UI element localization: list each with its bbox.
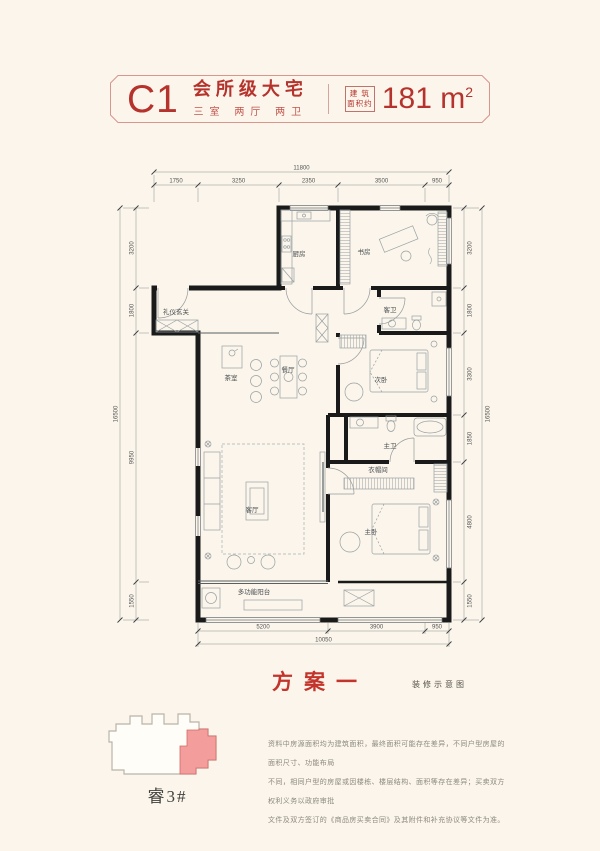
walls [154,208,449,620]
dim-left-seg: 3200 [130,241,136,255]
page: C1 会所级大宅 三室 两厅 两卫 建 筑 面积约 181 m2 [0,0,600,851]
area-label-line1: 建 筑 [346,89,374,99]
lamp-icon [205,441,211,447]
plaque-content: C1 会所级大宅 三室 两厅 两卫 建 筑 面积约 181 m2 [110,75,490,123]
room-label-master-bath: 主卫 [384,441,398,450]
title-block: 会所级大宅 三室 两厅 两卫 [193,80,308,118]
lamp-icon [433,555,439,561]
partitions [198,333,328,584]
disclaimer-line: 资料中房源面积均为建筑面积，最终面积可能存在差异，不同户型房屋的面积尺寸、功能布… [268,735,510,773]
bedroom2-furniture [340,335,437,402]
room-label-bedroom2: 次卧 [375,375,389,384]
disclaimer-line: 文件及双方签订的《商品房买卖合同》及其附件和补充协议等文件为准。 [268,811,510,830]
corridor-cabinet [316,314,328,342]
dim-right-seg: 3200 [468,241,474,255]
dim-right-seg: 4800 [468,515,474,529]
unit-code: C1 [127,80,179,119]
dim-top-seg: 1750 [169,179,183,185]
header-plaque: C1 会所级大宅 三室 两厅 两卫 建 筑 面积约 181 m2 [110,75,490,123]
dim-bottom-total: 10050 [315,638,332,644]
lamp-icon [205,553,211,559]
dim-right-total: 16500 [486,405,492,422]
dim-right-seg: 1800 [468,303,474,317]
floor-plan-drawing: 厨房 书房 客卫 礼仪玄关 茶室 餐厅 次卧 客厅 主卫 衣帽间 主卧 多功能阳… [94,152,506,667]
disclaimer-line: 不同，相同户型的房屋或因楼栋、楼层结构、面积等存在差异；买卖双方权利义务以政府审… [268,773,510,811]
room-label-living: 客厅 [246,505,260,514]
plan-subtitle: 三室 两厅 两卫 [193,103,308,118]
room-label-kitchen: 厨房 [293,249,306,258]
dim-bottom-seg: 950 [432,625,443,631]
kitchen-furniture [281,210,330,284]
room-label-guest-bath: 客卫 [384,305,398,314]
dimension-lines: 11800 1750 3250 2350 3500 950 5200 3900 … [114,166,492,648]
plan-caption: 方案一 [252,666,388,696]
dim-left-seg: 1800 [130,303,136,317]
plan-caption-note: 装修示意图 [412,679,467,690]
master-bedroom-furniture [340,499,439,606]
room-label-balcony: 多功能阳台 [238,587,271,596]
dim-top-seg: 950 [432,179,443,185]
dim-left-seg: 9950 [130,450,136,464]
dim-top-seg: 2350 [302,179,316,185]
room-label-study: 书房 [358,247,371,256]
dim-top-seg: 3250 [232,179,246,185]
dim-top-total: 11800 [293,166,310,172]
dim-right-seg: 3300 [468,367,474,381]
divider [328,84,329,114]
dim-bottom-seg: 3900 [370,625,384,631]
room-label-foyer: 礼仪玄关 [163,307,190,316]
building-label: 睿3# [100,782,235,807]
room-label-tea-room: 茶室 [225,373,239,382]
dim-right-seg: 1550 [468,594,474,608]
room-label-master-bedroom: 主卧 [365,527,379,536]
area-number: 181 m [382,82,465,115]
dim-left-seg: 1550 [130,594,136,608]
master-bath-fixtures [350,416,446,436]
area-label-line2: 面积约 [346,99,374,109]
study-furniture [340,210,447,284]
area-exponent: 2 [465,84,473,100]
foyer-cabinet [156,320,198,332]
room-label-closet: 衣帽间 [368,465,388,474]
living-room-furniture [204,441,325,569]
building-key-plan [100,702,235,782]
area-label-box: 建 筑 面积约 [345,86,375,112]
dim-right-seg: 1850 [468,431,474,445]
plan-title: 会所级大宅 [193,80,308,100]
dining-furniture [271,356,307,398]
dim-top-seg: 3500 [375,179,389,185]
area-value: 181 m2 [382,84,473,114]
dim-left-total: 16500 [114,405,120,422]
dim-bottom-seg: 5200 [256,625,270,631]
lamp-icon [433,499,439,505]
closet-furniture [344,464,447,492]
floor-plan: 厨房 书房 客卫 礼仪玄关 茶室 餐厅 次卧 客厅 主卫 衣帽间 主卧 多功能阳… [94,152,506,667]
dimension-labels: 11800 1750 3250 2350 3500 950 5200 3900 … [114,166,492,644]
disclaimer: 资料中房源面积均为建筑面积，最终面积可能存在差异，不同户型房屋的面积尺寸、功能布… [268,735,510,830]
room-label-dining: 餐厅 [282,365,296,374]
